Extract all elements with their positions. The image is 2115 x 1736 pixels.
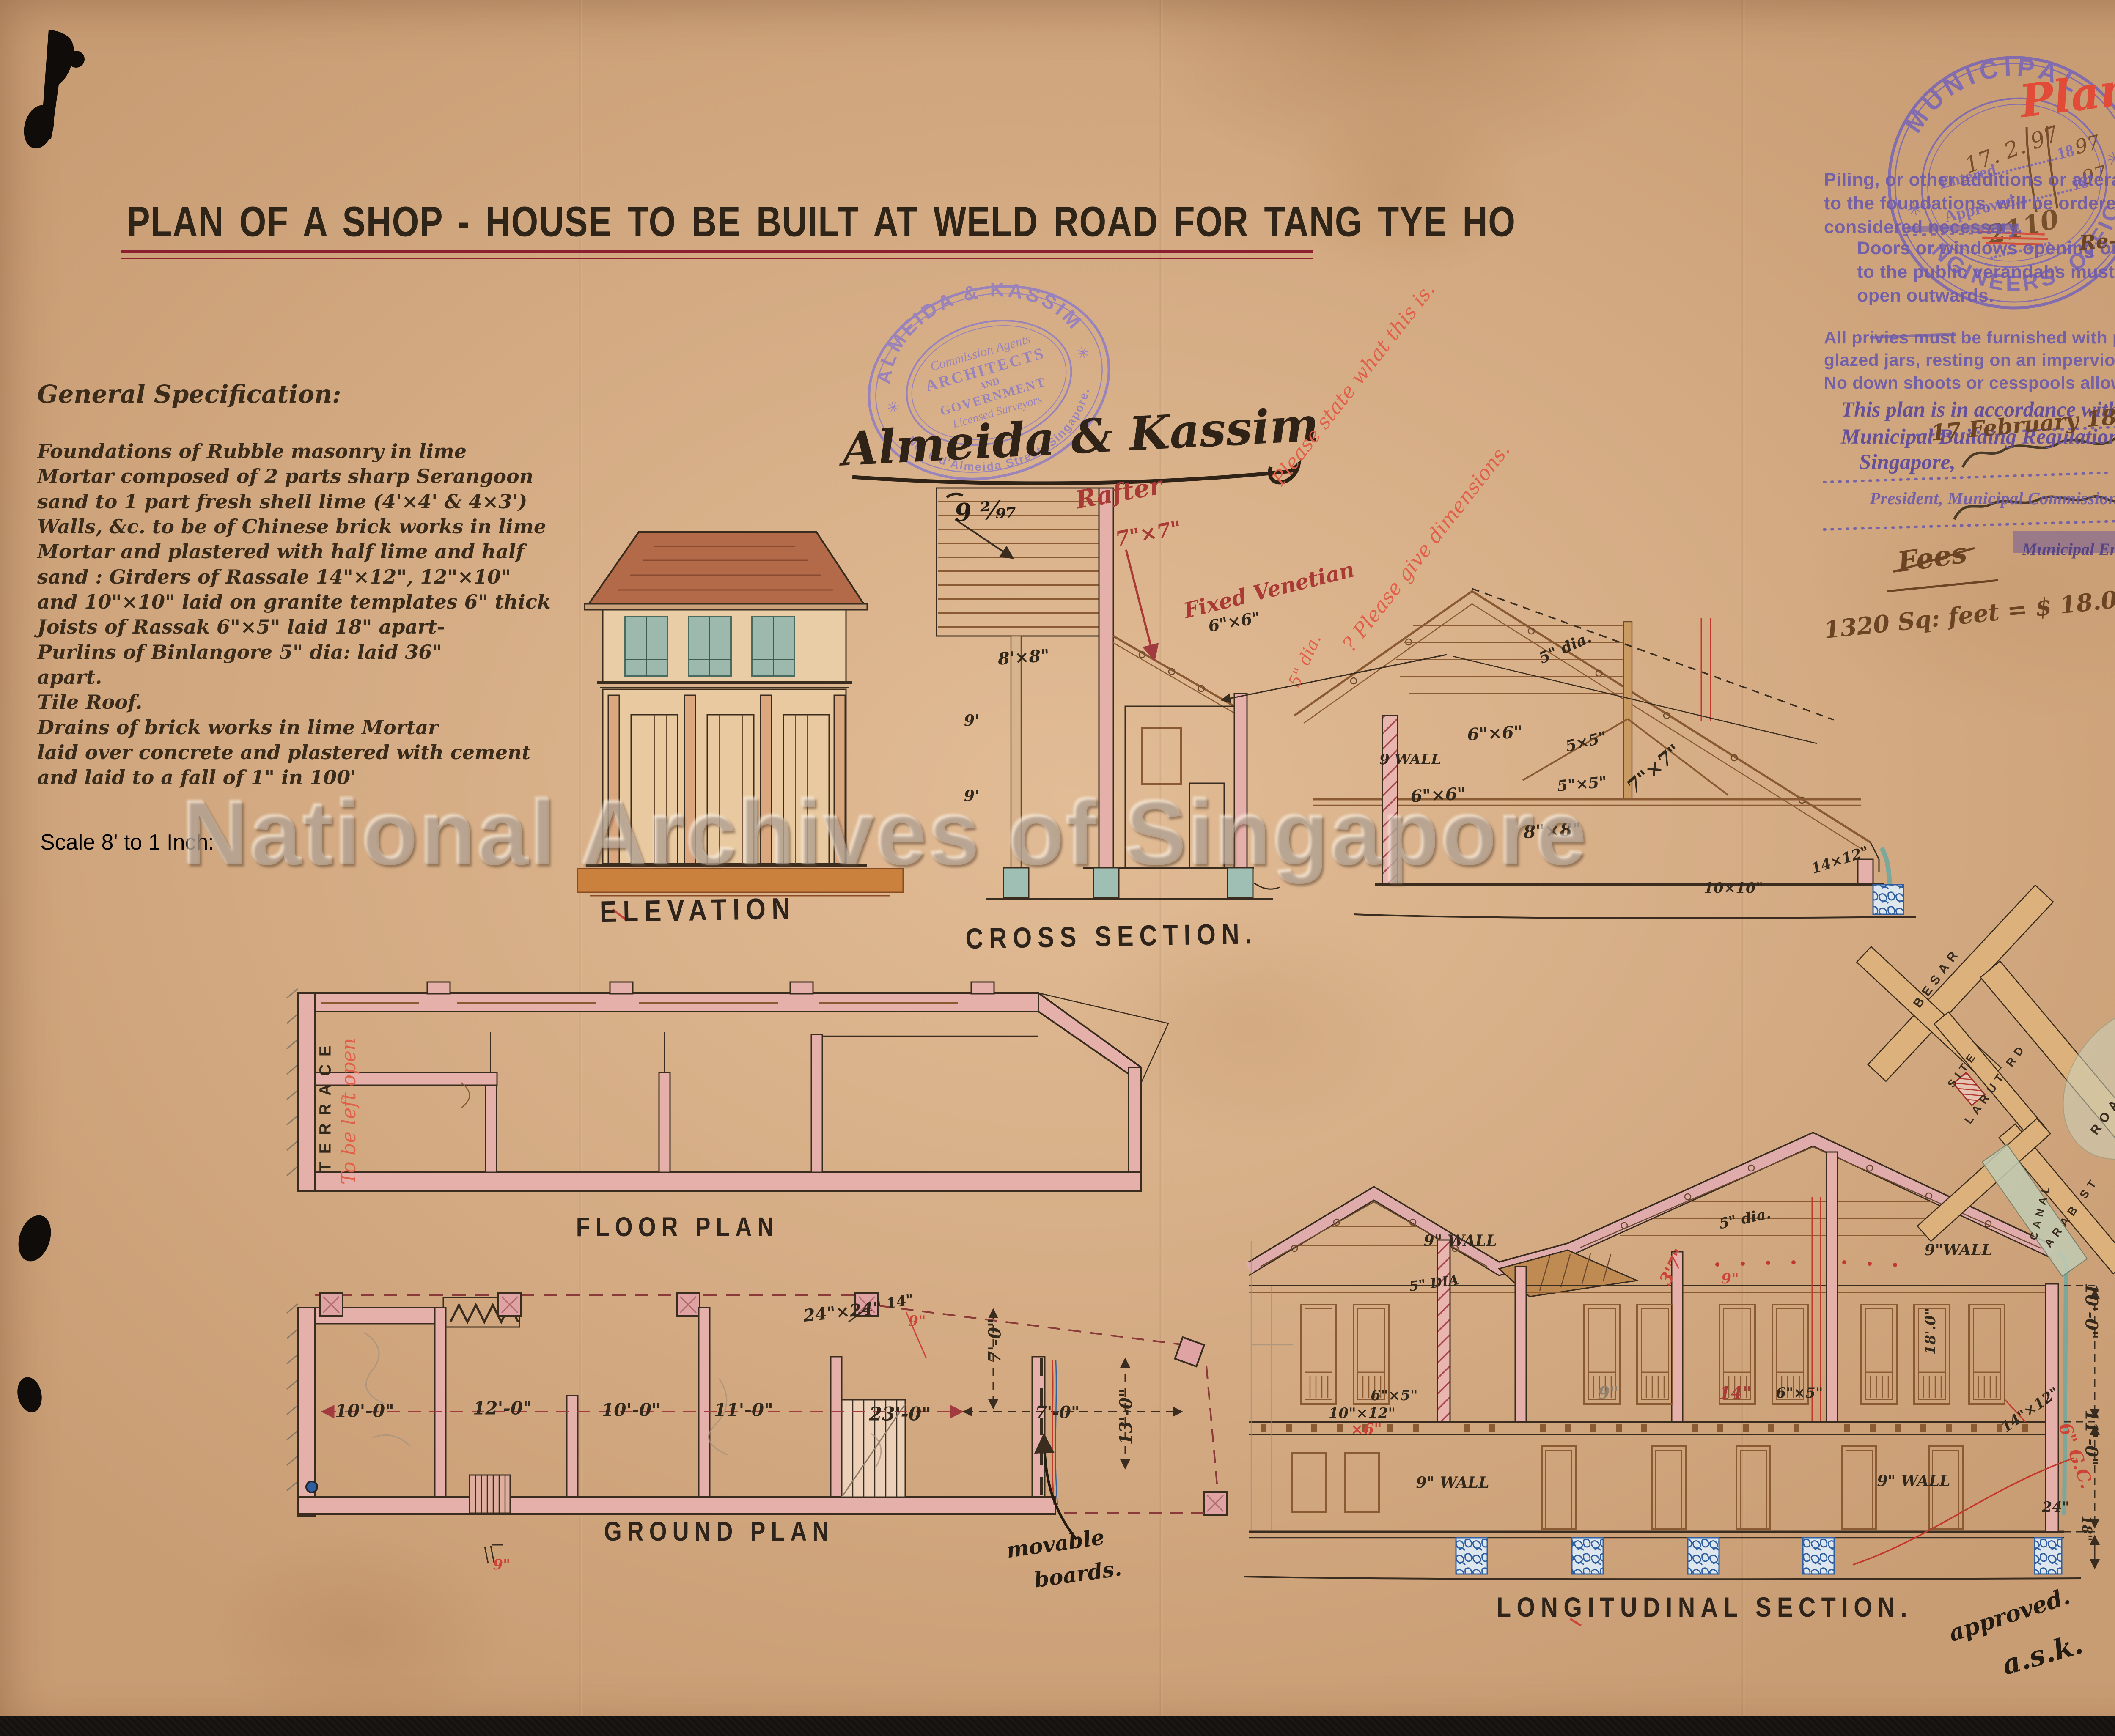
regulation-para-doors-line: to the public verandahs must not [1857, 261, 2115, 284]
section-label-longitudinal-section: LONGITUDINAL SECTION. [1497, 1591, 1913, 1624]
dimension-annotation: 7'-0" [1035, 1403, 1079, 1423]
dimension-annotation: 10'-0" [335, 1401, 394, 1421]
paper-crease [1741, 0, 1745, 1736]
paper-crease [1159, 0, 1163, 1736]
regulation-para-privies: All privies must be furnished with pails… [1824, 326, 2115, 394]
dimension-annotation: 14" [1719, 1383, 1752, 1403]
regulation-para-doors-line: Doors or windows opening on [1857, 237, 2115, 261]
dimension-annotation: 6"×6" [1467, 722, 1523, 745]
specification-body-line: Walls, &c. to be of Chinese brick works … [37, 514, 629, 539]
regulation-para-piling-line: Piling, or other additions or alteration… [1824, 168, 2115, 192]
regulation-para-privies-line: glazed jars, resting on an impervious fl… [1824, 349, 2115, 371]
dimension-annotation: 18'.0" [1922, 1308, 1939, 1355]
dimension-annotation: 8'×8" [997, 645, 1050, 669]
scan-edge-bottom [0, 1716, 2115, 1736]
section-label-cross-section: CROSS SECTION. [965, 917, 1258, 955]
scale-note: Scale 8' to 1 Inch: [40, 830, 214, 855]
specification-body-line: Joists of Rassak 6"×5" laid 18" apart- [37, 614, 629, 639]
specification-body-line: sand to 1 part fresh shell lime (4'×4' &… [37, 489, 629, 514]
general-specification: General Specification: Foundations of Ru… [37, 365, 629, 806]
dimension-annotation: 24" [2042, 1499, 2069, 1516]
dimension-annotation: 9" [493, 1556, 510, 1573]
wall-label: 9" WALL [1877, 1472, 1950, 1490]
regulation-para-piling-line: considered necessary. [1824, 216, 2115, 239]
dimension-annotation: 11'-0" [714, 1400, 773, 1421]
section-label-ground-plan: GROUND PLAN [604, 1516, 835, 1547]
regulation-para-piling: Piling, or other additions or alteration… [1824, 168, 2115, 239]
specification-body: Foundations of Rubble masonry in limeMor… [37, 439, 629, 790]
paper-background [0, 0, 2115, 1736]
dimension-annotation: 10×10" [1704, 880, 1763, 897]
scanned-plan-document: MUNICIPAL ENGINEERS' OFFICE ✳ ✳ Entered.… [0, 0, 2115, 1736]
dimension-annotation: 7'-0" [985, 1318, 1005, 1363]
regulation-para-privies-line: All privies must be furnished with pails… [1824, 326, 2115, 349]
engineer-label: Municipal Engineer [2022, 539, 2115, 559]
dimension-annotation: 9" [1721, 1270, 1739, 1287]
regulation-para-doors-line: open outwards. [1857, 284, 2115, 308]
room-label-terrace: TERRACE [317, 1038, 335, 1172]
dimension-annotation: 23'-0" [869, 1404, 931, 1425]
specification-body-line: laid over concrete and plastered with ce… [37, 740, 629, 765]
architect-signature-date: 9 ²⁄₉₇ [954, 494, 1018, 527]
accordance-place: Singapore, [1859, 449, 1956, 476]
paper-crease [579, 0, 583, 1736]
specification-body-line: and laid to a fall of 1" in 100' [37, 765, 629, 790]
review-note-to-be-left-open: To be left open [337, 1038, 360, 1185]
specification-heading: General Specification: [37, 380, 629, 409]
wall-label: 9"WALL [1925, 1241, 1993, 1259]
dimension-annotation: 9" [1598, 1383, 1619, 1403]
regulation-para-privies-line: No down shoots or cesspools allowed. [1824, 372, 2115, 394]
regulation-para-piling-line: to the foundations, will be ordered if [1824, 192, 2115, 216]
dimension-annotation: 9" [908, 1313, 926, 1330]
dimension-annotation: 9' [964, 787, 979, 805]
specification-body-line: Drains of brick works in lime Mortar [37, 715, 629, 740]
wall-label: 9 WALL [1379, 751, 1441, 768]
specification-body-line: Mortar and plastered with half lime and … [37, 539, 629, 564]
dimension-annotation: 6"×6" [1410, 784, 1466, 806]
page-title: PLAN OF A SHOP - HOUSE TO BE BUILT AT WE… [127, 198, 1516, 247]
regulation-para-doors: Doors or windows opening onto the public… [1857, 237, 2115, 308]
specification-body-line: Purlins of Binlangore 5" dia: laid 36" [37, 640, 629, 665]
title-underline [121, 250, 1313, 259]
specification-body-line: and 10"×10" laid on granite templates 6"… [37, 590, 629, 614]
dimension-annotation: ×6" [1351, 1421, 1382, 1438]
section-label-elevation: ELEVATION [599, 891, 796, 929]
dimension-annotation: 10'-0" [2082, 1283, 2101, 1339]
dimension-annotation: 12'-0" [473, 1398, 532, 1419]
specification-body-line: Tile Roof. [37, 690, 629, 715]
dimension-annotation: 9' [964, 712, 979, 730]
specification-body-line: Mortar composed of 2 parts sharp Serango… [37, 464, 629, 489]
dimension-annotation: 18" [2079, 1515, 2095, 1541]
section-label-floor-plan: FLOOR PLAN [576, 1212, 780, 1242]
president-label: President, Municipal Commissioners. [1870, 487, 2115, 510]
dimension-annotation: 8"×8" [1523, 819, 1582, 842]
specification-body-line: sand : Girders of Rassale 14"×12", 12"×1… [37, 565, 629, 590]
dimension-annotation: 6"×5" [1776, 1385, 1823, 1401]
dimension-annotation: 10"×12" [1329, 1405, 1396, 1422]
specification-body-line: Foundations of Rubble masonry in lime [37, 439, 629, 464]
specification-body-line: apart. [37, 665, 629, 690]
wall-label: 9" WALL [1423, 1232, 1497, 1250]
dimension-annotation: 10'-0" [602, 1400, 661, 1421]
wall-label: 9" WALL [1416, 1474, 1489, 1492]
dimension-annotation: 6"×5" [1371, 1387, 1417, 1404]
dimension-annotation: 13'-0" [1116, 1388, 1136, 1445]
